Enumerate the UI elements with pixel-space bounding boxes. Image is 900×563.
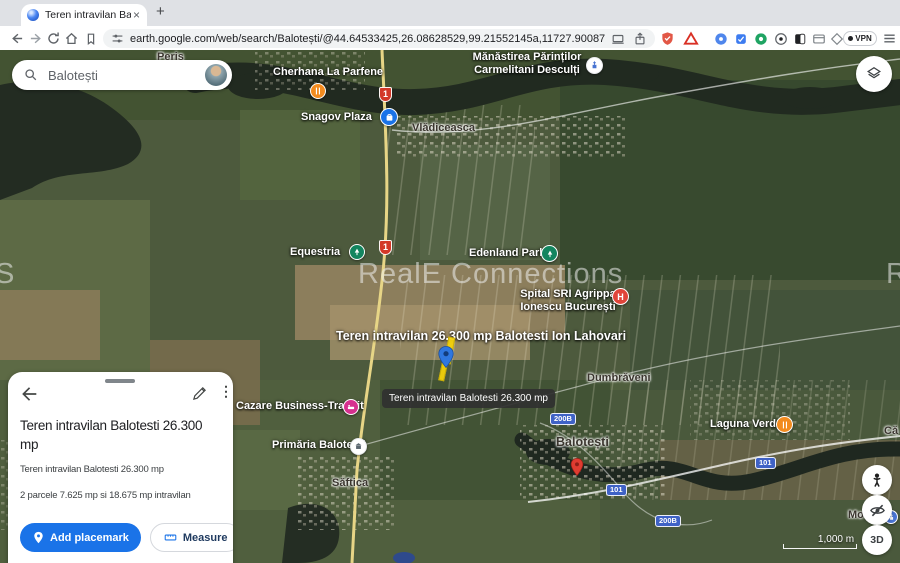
add-placemark-button[interactable]: Add placemark bbox=[20, 523, 141, 552]
map-label-caciulati-partial: Că bbox=[884, 425, 898, 437]
map-label-spital: Spital SRI Agrippa Ionescu București bbox=[520, 288, 616, 314]
road-badge-dn1: 1 bbox=[379, 240, 392, 255]
back-arrow-icon bbox=[20, 385, 38, 403]
restaurant-icon[interactable] bbox=[310, 83, 326, 99]
share-icon[interactable] bbox=[633, 32, 647, 46]
browser-tab[interactable]: Teren intravilan Balotesti 26… × bbox=[21, 4, 147, 26]
avatar[interactable] bbox=[205, 64, 227, 86]
google-earth-favicon-icon bbox=[27, 9, 39, 21]
back-icon[interactable] bbox=[8, 30, 25, 47]
address-bar[interactable]: earth.google.com/web/search/Balotești/@4… bbox=[103, 29, 655, 48]
site-settings-icon[interactable] bbox=[111, 32, 124, 45]
map-label-laguna-verde: Laguna Verde bbox=[710, 418, 782, 430]
pegman-icon bbox=[869, 472, 885, 488]
spital-line2: Ionescu București bbox=[520, 301, 615, 313]
layers-button[interactable] bbox=[856, 56, 892, 92]
send-to-device-icon[interactable] bbox=[611, 32, 625, 46]
extension-icon-3[interactable] bbox=[752, 30, 769, 47]
blue-placemark-pin-icon[interactable] bbox=[438, 346, 454, 368]
map-label-equestria: Equestria bbox=[290, 246, 340, 258]
tab-close-icon[interactable]: × bbox=[133, 8, 140, 22]
browser-window: Teren intravilan Balotesti 26… × + earth… bbox=[0, 0, 900, 563]
panel-actions-row: Add placemark Measure ⋯ More bbox=[20, 523, 233, 552]
road-badge-dn1: 1 bbox=[379, 87, 392, 102]
extension-icon-4[interactable] bbox=[772, 30, 789, 47]
forward-icon[interactable] bbox=[28, 30, 45, 47]
layers-icon bbox=[864, 64, 884, 84]
add-placemark-label: Add placemark bbox=[50, 532, 129, 544]
extension-icon-5[interactable] bbox=[791, 30, 808, 47]
map-label-balotesti: Balotești bbox=[556, 435, 609, 449]
vpn-status-dot-icon bbox=[848, 36, 853, 41]
panel-back-button[interactable] bbox=[20, 385, 38, 408]
hospital-icon[interactable]: H bbox=[612, 288, 629, 305]
tab-title: Teren intravilan Balotesti 26… bbox=[45, 9, 131, 21]
ruler-icon bbox=[163, 531, 178, 544]
watermark-partial-right: R bbox=[886, 258, 900, 291]
map-label-cherhana: Cherhana La Parfene bbox=[273, 66, 383, 78]
warning-triangle-icon[interactable] bbox=[682, 30, 699, 47]
placemark-pin-icon bbox=[32, 531, 45, 544]
panel-title-line2: mp bbox=[20, 437, 38, 452]
browser-toolbar: earth.google.com/web/search/Balotești/@4… bbox=[0, 26, 900, 51]
panel-title: Teren intravilan Balotesti 26.300 mp bbox=[20, 416, 223, 454]
scale-bar bbox=[783, 544, 857, 549]
spital-line1: Spital SRI Agrippa bbox=[520, 288, 616, 300]
road-badge-200b: 200B bbox=[550, 413, 576, 425]
map-label-edenland: Edenland Park bbox=[469, 247, 545, 259]
church-icon[interactable] bbox=[586, 57, 603, 74]
bookmark-icon[interactable] bbox=[82, 30, 99, 47]
lodging-icon[interactable] bbox=[343, 399, 359, 415]
reload-icon[interactable] bbox=[45, 30, 62, 47]
watermark: RealE Connections bbox=[358, 258, 623, 291]
map-label-snagov-plaza: Snagov Plaza bbox=[301, 111, 372, 123]
manastirea-line1: Mănăstirea Părinților bbox=[473, 51, 582, 63]
pegman-button[interactable] bbox=[862, 465, 892, 495]
road-badge-101: 101 bbox=[755, 457, 776, 469]
measure-label: Measure bbox=[183, 532, 228, 544]
map-label-teren: Teren intravilan 26.300 mp Balotesti Ion… bbox=[336, 329, 626, 343]
extension-icon-2[interactable] bbox=[732, 30, 749, 47]
home-icon[interactable] bbox=[63, 30, 80, 47]
map-label-vladiceasca: Vlădiceasca bbox=[412, 122, 475, 134]
measure-button[interactable]: Measure bbox=[150, 523, 233, 552]
restaurant-icon[interactable] bbox=[776, 416, 793, 433]
panel-description-2: 2 parcele 7.625 mp si 18.675 mp intravil… bbox=[20, 490, 225, 501]
url-text: earth.google.com/web/search/Balotești/@4… bbox=[130, 33, 605, 45]
eye-off-icon bbox=[869, 502, 886, 519]
shopping-icon[interactable] bbox=[380, 108, 398, 126]
map-label-dumbraveni: Dumbrăveni bbox=[587, 372, 651, 384]
panel-drag-handle[interactable] bbox=[105, 379, 135, 383]
town-hall-icon[interactable] bbox=[350, 438, 367, 455]
manastirea-line2: Carmelitani Desculți bbox=[474, 64, 580, 76]
road-badge-200b: 200B bbox=[655, 515, 681, 527]
search-icon bbox=[24, 68, 38, 82]
panel-title-line1: Teren intravilan Balotesti 26.300 bbox=[20, 418, 202, 433]
tab-strip: Teren intravilan Balotesti 26… × + bbox=[0, 0, 900, 26]
toggle-visibility-button[interactable] bbox=[862, 495, 892, 525]
panel-more-options-kebab-icon[interactable]: ⋮ bbox=[219, 383, 233, 400]
adblock-shield-icon[interactable] bbox=[659, 30, 676, 47]
new-tab-button[interactable]: + bbox=[156, 3, 165, 20]
map-label-manastirea: Mănăstirea Părinților Carmelitani Descul… bbox=[462, 51, 592, 77]
watermark-partial-left: S bbox=[0, 258, 15, 291]
vpn-label: VPN bbox=[855, 34, 871, 43]
road-badge-101: 101 bbox=[606, 484, 627, 496]
red-placemark-pin-icon[interactable] bbox=[570, 458, 584, 476]
panel-edit-button[interactable] bbox=[192, 386, 207, 406]
menu-icon[interactable] bbox=[881, 30, 898, 47]
3d-button[interactable]: 3D bbox=[862, 525, 892, 555]
park-icon[interactable] bbox=[541, 245, 558, 262]
placemark-tooltip: Teren intravilan Balotesti 26.300 mp bbox=[382, 389, 555, 408]
extension-icon-1[interactable] bbox=[712, 30, 729, 47]
pencil-icon bbox=[192, 386, 207, 401]
search-input[interactable] bbox=[46, 67, 205, 84]
placemark-panel: ⋮ Teren intravilan Balotesti 26.300 mp T… bbox=[8, 372, 233, 563]
map-label-saftica: Săftica bbox=[332, 477, 368, 489]
park-icon[interactable] bbox=[349, 244, 365, 260]
extension-icon-6[interactable] bbox=[810, 30, 827, 47]
panel-description-1: Teren intravilan Balotesti 26.300 mp bbox=[20, 464, 225, 475]
vpn-button[interactable]: VPN bbox=[843, 31, 877, 46]
earth-search-bar[interactable] bbox=[12, 60, 232, 90]
